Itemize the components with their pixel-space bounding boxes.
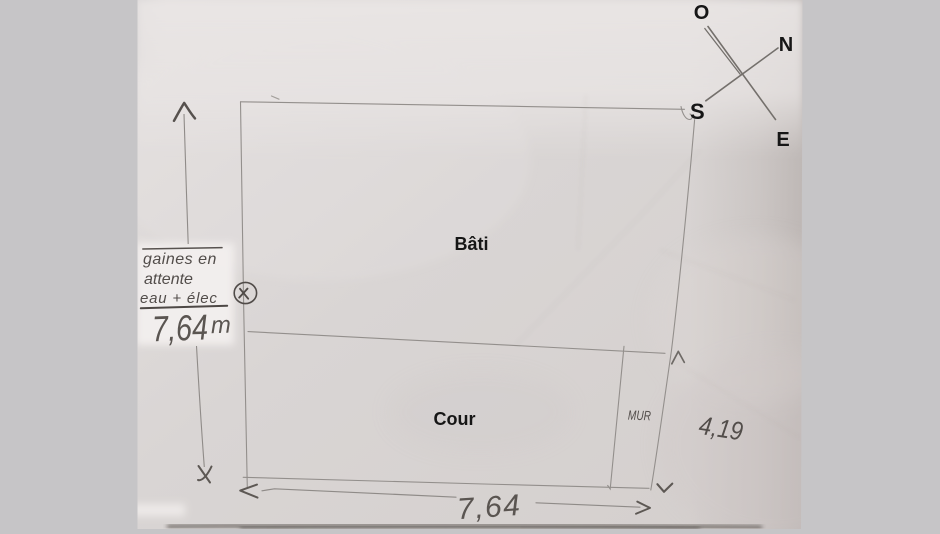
svg-text:Bâti: Bâti xyxy=(454,234,488,254)
svg-text:N: N xyxy=(779,34,793,56)
svg-text:E: E xyxy=(776,129,789,151)
svg-text:MUR: MUR xyxy=(628,408,652,424)
svg-text:S: S xyxy=(690,99,705,124)
svg-text:7,64: 7,64 xyxy=(151,306,208,349)
svg-text:7,64: 7,64 xyxy=(456,489,523,526)
svg-text:O: O xyxy=(694,2,710,24)
svg-text:gaines en: gaines en xyxy=(143,251,217,268)
svg-text:attente: attente xyxy=(144,271,193,288)
svg-text:m: m xyxy=(210,312,231,340)
svg-text:eau + élec: eau + élec xyxy=(140,290,218,307)
svg-text:Cour: Cour xyxy=(434,409,476,429)
